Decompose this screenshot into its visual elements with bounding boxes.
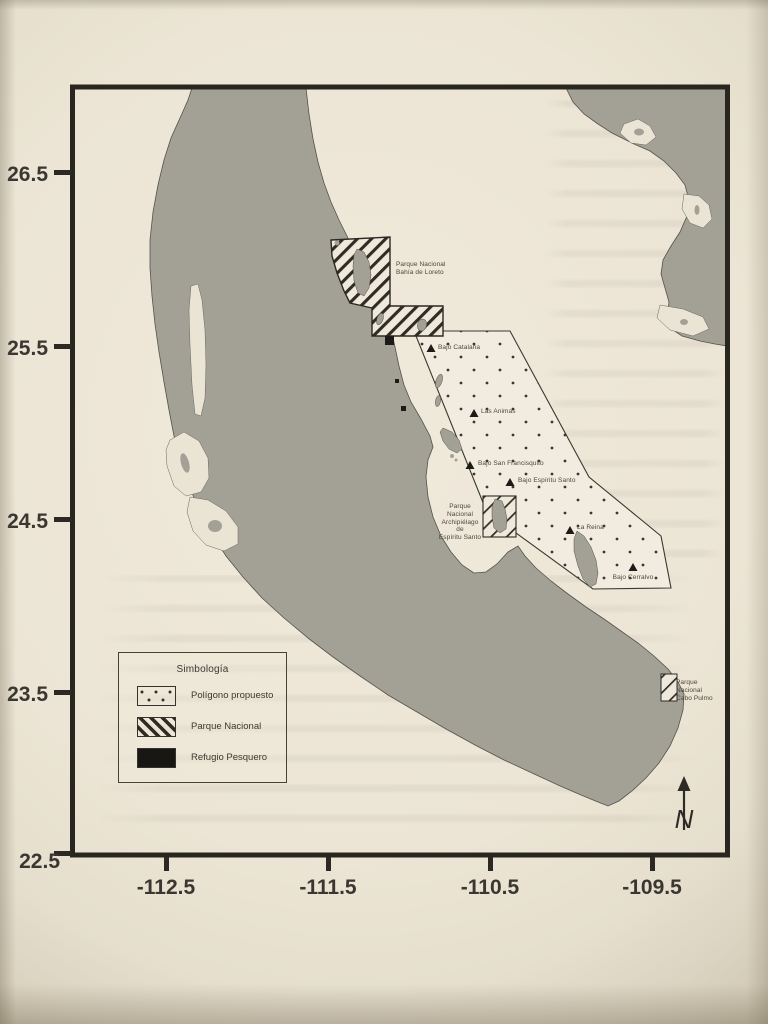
legend-item-label: Polígono propuesto — [191, 690, 273, 701]
photographed-page: { "figure": { "axes": { "latitude": ["26… — [0, 0, 768, 1024]
lon-label-112-5: -112.5 — [137, 876, 196, 899]
bajo-espiritu-santo-label: Bajo Espíritu Santo — [518, 477, 576, 485]
legend-item-national-park: Parque Nacional — [137, 716, 286, 737]
bajo-cerralvo-label: Bajo Cerralvo — [607, 574, 659, 582]
coastal-mark-1 — [395, 379, 399, 383]
coronado-islet — [335, 241, 340, 246]
lon-tick-109-5 — [650, 857, 655, 871]
lat-tick-25-5 — [54, 344, 72, 349]
bajo-catalana-label: Bajo Catalana — [438, 344, 480, 352]
monserrat-island — [435, 395, 442, 407]
lat-tick-26-5 — [54, 170, 72, 175]
cabo-pulmo-park-label: Parque Nacional Cabo Pulmo — [676, 679, 722, 702]
lon-tick-110-5 — [488, 857, 493, 871]
mainland-islet-2 — [695, 205, 700, 215]
lat-tick-23-5 — [54, 690, 72, 695]
lat-label-26-5: 26.5 — [7, 163, 48, 186]
legend-item-proposed-polygon: Polígono propuesto — [137, 685, 286, 706]
north-arrow-label: N — [675, 804, 694, 834]
map-figure: 26.5 25.5 24.5 23.5 22.5 -112.5 -111.5 -… — [0, 0, 768, 1024]
mainland-islet-1 — [634, 129, 644, 136]
islet-chain-1 — [450, 454, 454, 458]
las-animas-label: Las Animas — [481, 408, 516, 416]
espiritu-santo-park-label: Parque Nacional Archipiélago de Espíritu… — [437, 503, 483, 542]
lon-label-109-5: -109.5 — [622, 876, 682, 899]
cabo-pulmo-park-area — [661, 674, 677, 701]
lon-tick-111-5 — [326, 857, 331, 871]
north-arrow: N — [675, 776, 694, 834]
legend-item-label: Parque Nacional — [191, 721, 261, 732]
lon-label-111-5: -111.5 — [299, 876, 357, 899]
dotted-swatch — [137, 686, 176, 706]
legend-title: Simbología — [119, 664, 286, 675]
lat-tick-24-5 — [54, 517, 72, 522]
legend-box: Simbología Polígono propuesto Parque Nac… — [118, 652, 287, 783]
hatched-swatch — [137, 717, 176, 737]
lon-label-110-5: -110.5 — [461, 876, 520, 899]
loreto-park-label: Parque Nacional Bahía de Loreto — [396, 261, 456, 277]
solid-black-swatch — [137, 748, 176, 768]
lat-label-23-5: 23.5 — [7, 683, 48, 706]
refugio-pesquero-marker — [385, 336, 394, 345]
mainland-islet-3 — [680, 319, 688, 325]
lon-tick-112-5 — [164, 857, 169, 871]
legend-item-label: Refugio Pesquero — [191, 752, 267, 763]
lat-label-25-5: 25.5 — [7, 337, 48, 360]
legend-item-fishing-refuge: Refugio Pesquero — [137, 747, 286, 768]
lat-label-24-5: 24.5 — [7, 510, 48, 533]
bajo-san-francisquito-label: Bajo San Francisquito — [478, 460, 544, 468]
islet-chain-2 — [455, 459, 458, 462]
coastal-mark-2 — [401, 406, 406, 411]
margarita-island — [208, 520, 222, 532]
lat-label-22-5: 22.5 — [19, 850, 60, 873]
la-reina-label: La Reina — [577, 524, 604, 532]
